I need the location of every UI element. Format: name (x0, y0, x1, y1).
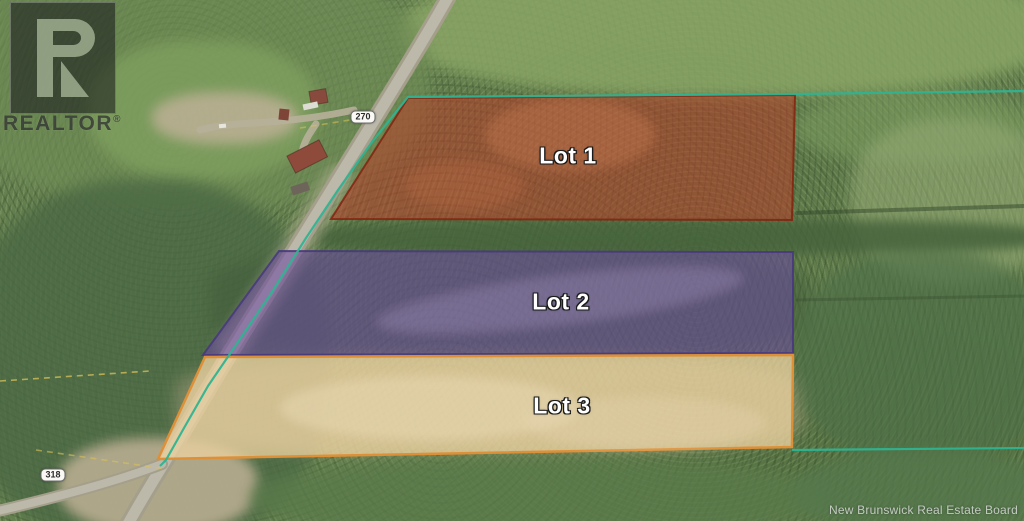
map-overlay-svg (0, 0, 1024, 521)
aerial-lot-map: Lot 1 Lot 2 Lot 3 270 318 REALTOR® New B… (0, 0, 1024, 521)
registered-mark: ® (113, 114, 120, 125)
realtor-logo: REALTOR® (0, 0, 130, 145)
realtor-logo-word: REALTOR® (3, 112, 127, 136)
realtor-r-icon (27, 15, 99, 101)
route-270-shield: 270 (350, 111, 375, 124)
lot-3-label: Lot 3 (533, 393, 590, 420)
realtor-logo-square (10, 2, 116, 114)
lot-2-label: Lot 2 (532, 289, 589, 316)
building-cluster (219, 89, 328, 196)
vehicle (219, 124, 226, 129)
parcel-boundary-line (792, 448, 1024, 450)
survey-line (36, 450, 166, 469)
lot-1-label: Lot 1 (539, 143, 596, 170)
board-watermark: New Brunswick Real Estate Board (829, 503, 1018, 517)
building-shed (278, 109, 289, 121)
survey-line (0, 371, 150, 381)
forest-cutline (797, 296, 1024, 300)
route-318-shield: 318 (40, 469, 65, 482)
building-outbuilding (290, 181, 310, 195)
forest-cutline (797, 206, 1024, 213)
realtor-word-text: REALTOR (3, 112, 113, 135)
